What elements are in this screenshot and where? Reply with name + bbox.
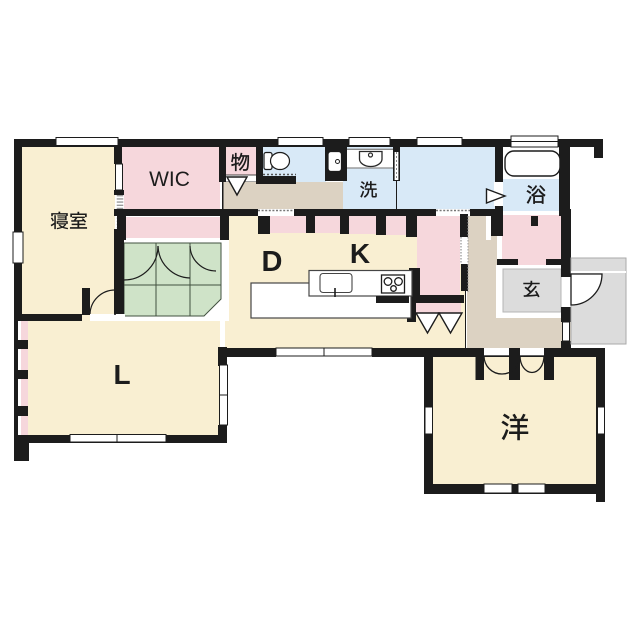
svg-text:D: D [262,246,283,278]
svg-text:K: K [350,238,370,269]
svg-text:L: L [113,359,130,390]
svg-text:WIC: WIC [149,168,190,191]
